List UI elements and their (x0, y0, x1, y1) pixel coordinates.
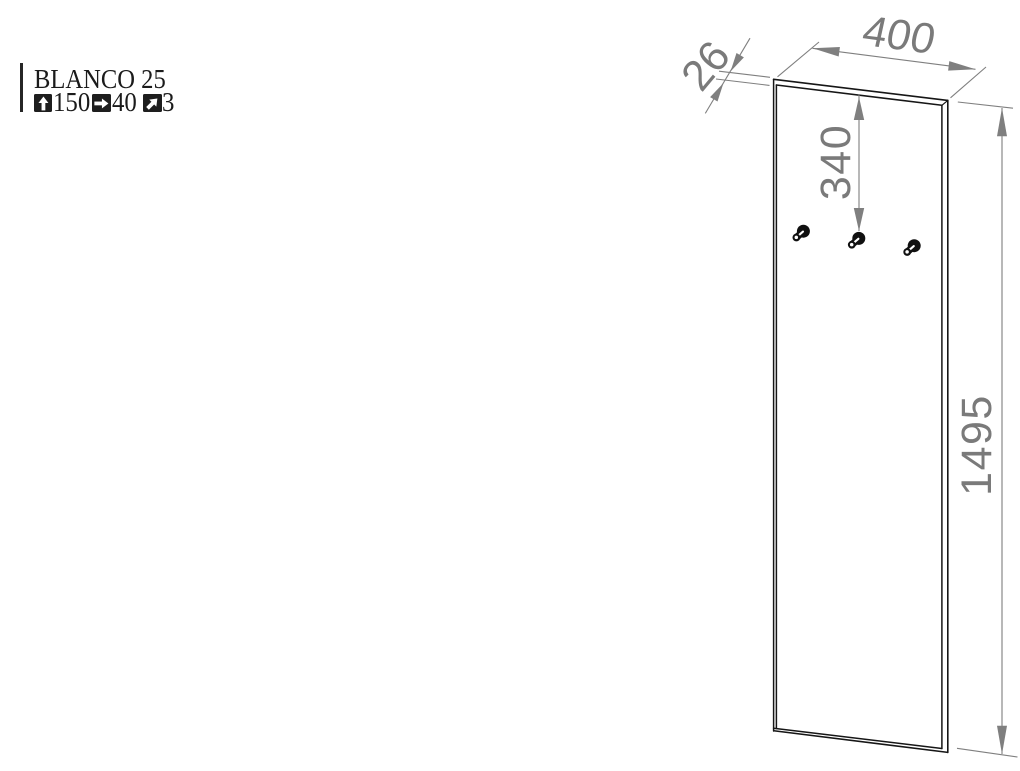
svg-text:26: 26 (672, 32, 740, 100)
svg-text:400: 400 (858, 7, 939, 63)
svg-text:340: 340 (812, 124, 860, 200)
svg-text:1495: 1495 (953, 394, 1001, 496)
